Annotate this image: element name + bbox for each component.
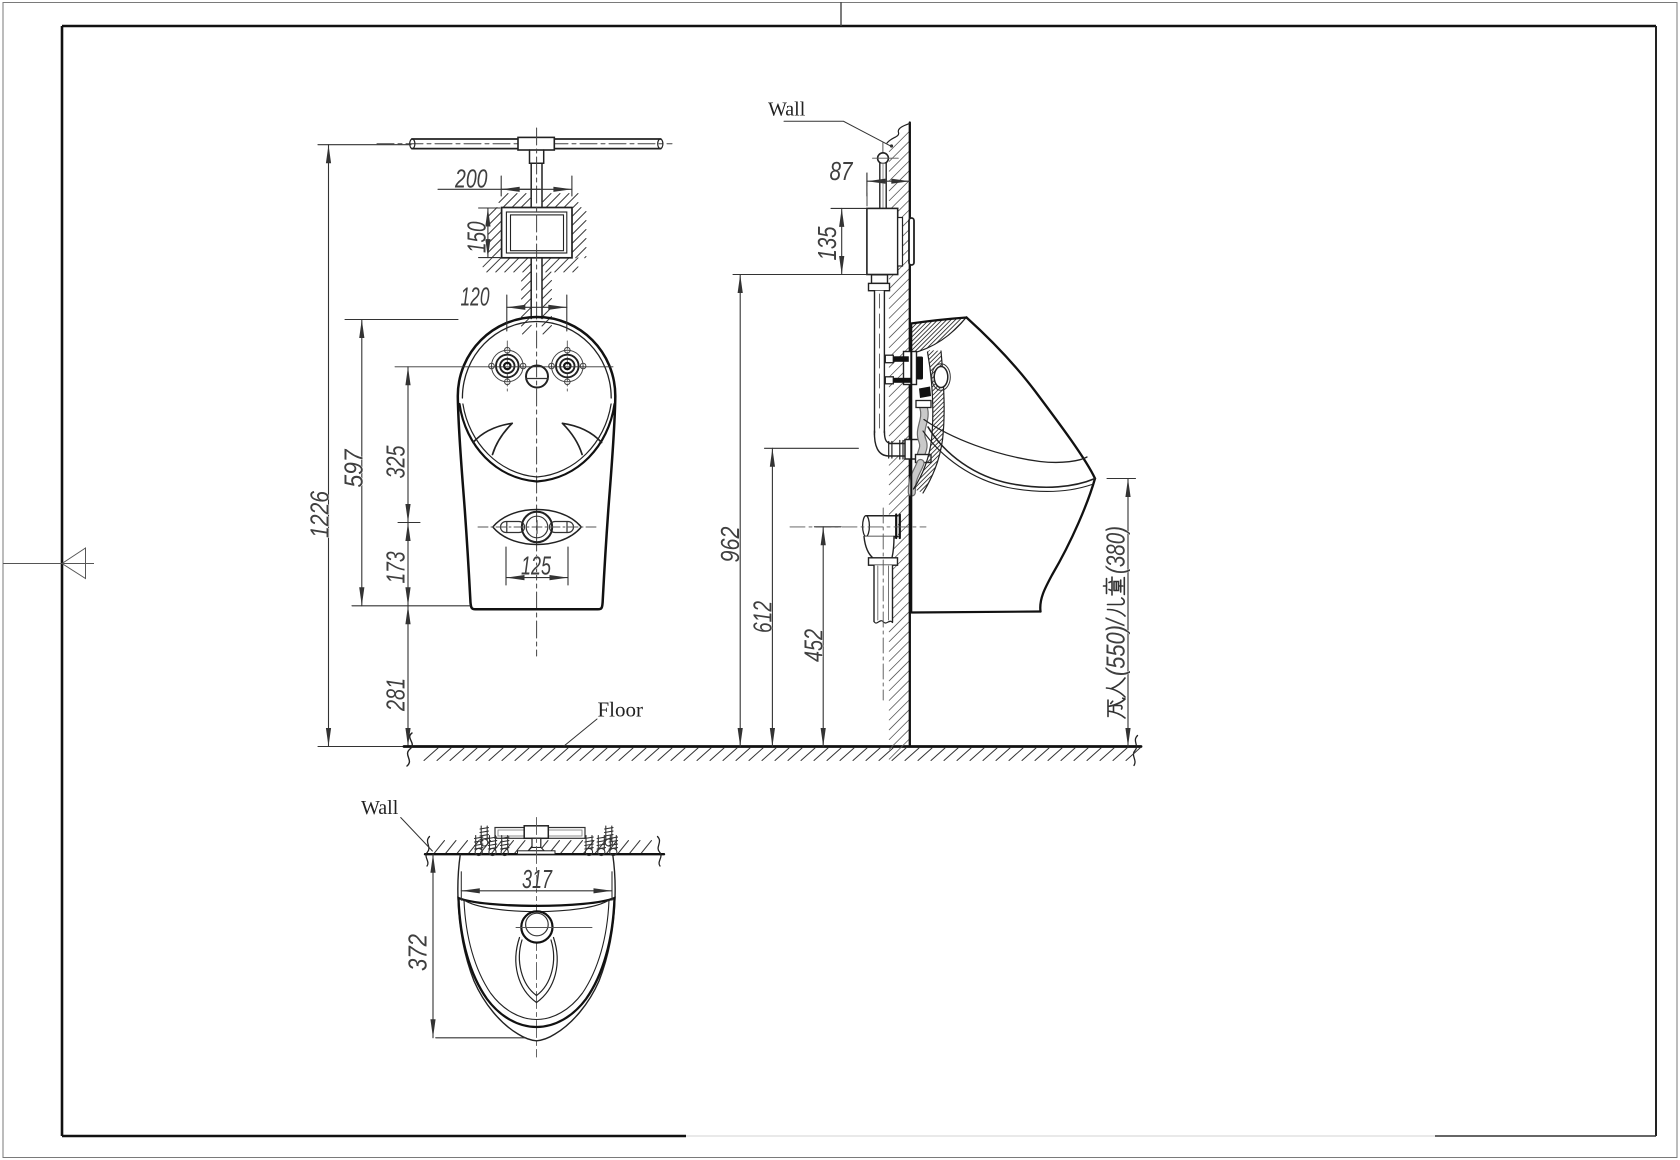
svg-text:1226: 1226: [305, 491, 335, 538]
svg-text:173: 173: [381, 551, 411, 583]
svg-text:Wall: Wall: [361, 797, 399, 819]
svg-text:87: 87: [830, 156, 854, 186]
svg-text:120: 120: [461, 282, 490, 312]
svg-text:452: 452: [799, 629, 829, 662]
svg-text:612: 612: [748, 601, 778, 633]
svg-text:281: 281: [381, 678, 411, 712]
svg-text:Floor: Floor: [598, 698, 644, 722]
svg-text:150: 150: [462, 221, 492, 253]
svg-text:(550)/: (550)/: [1101, 617, 1131, 676]
svg-text:372: 372: [403, 934, 433, 971]
svg-text:(380): (380): [1101, 526, 1131, 574]
svg-text:125: 125: [521, 551, 551, 581]
svg-text:317: 317: [522, 864, 553, 894]
svg-text:Wall: Wall: [768, 99, 806, 121]
svg-text:962: 962: [715, 526, 745, 562]
svg-text:135: 135: [812, 226, 842, 260]
svg-text:200: 200: [454, 164, 488, 194]
svg-text:597: 597: [339, 448, 369, 487]
svg-text:325: 325: [381, 445, 411, 478]
